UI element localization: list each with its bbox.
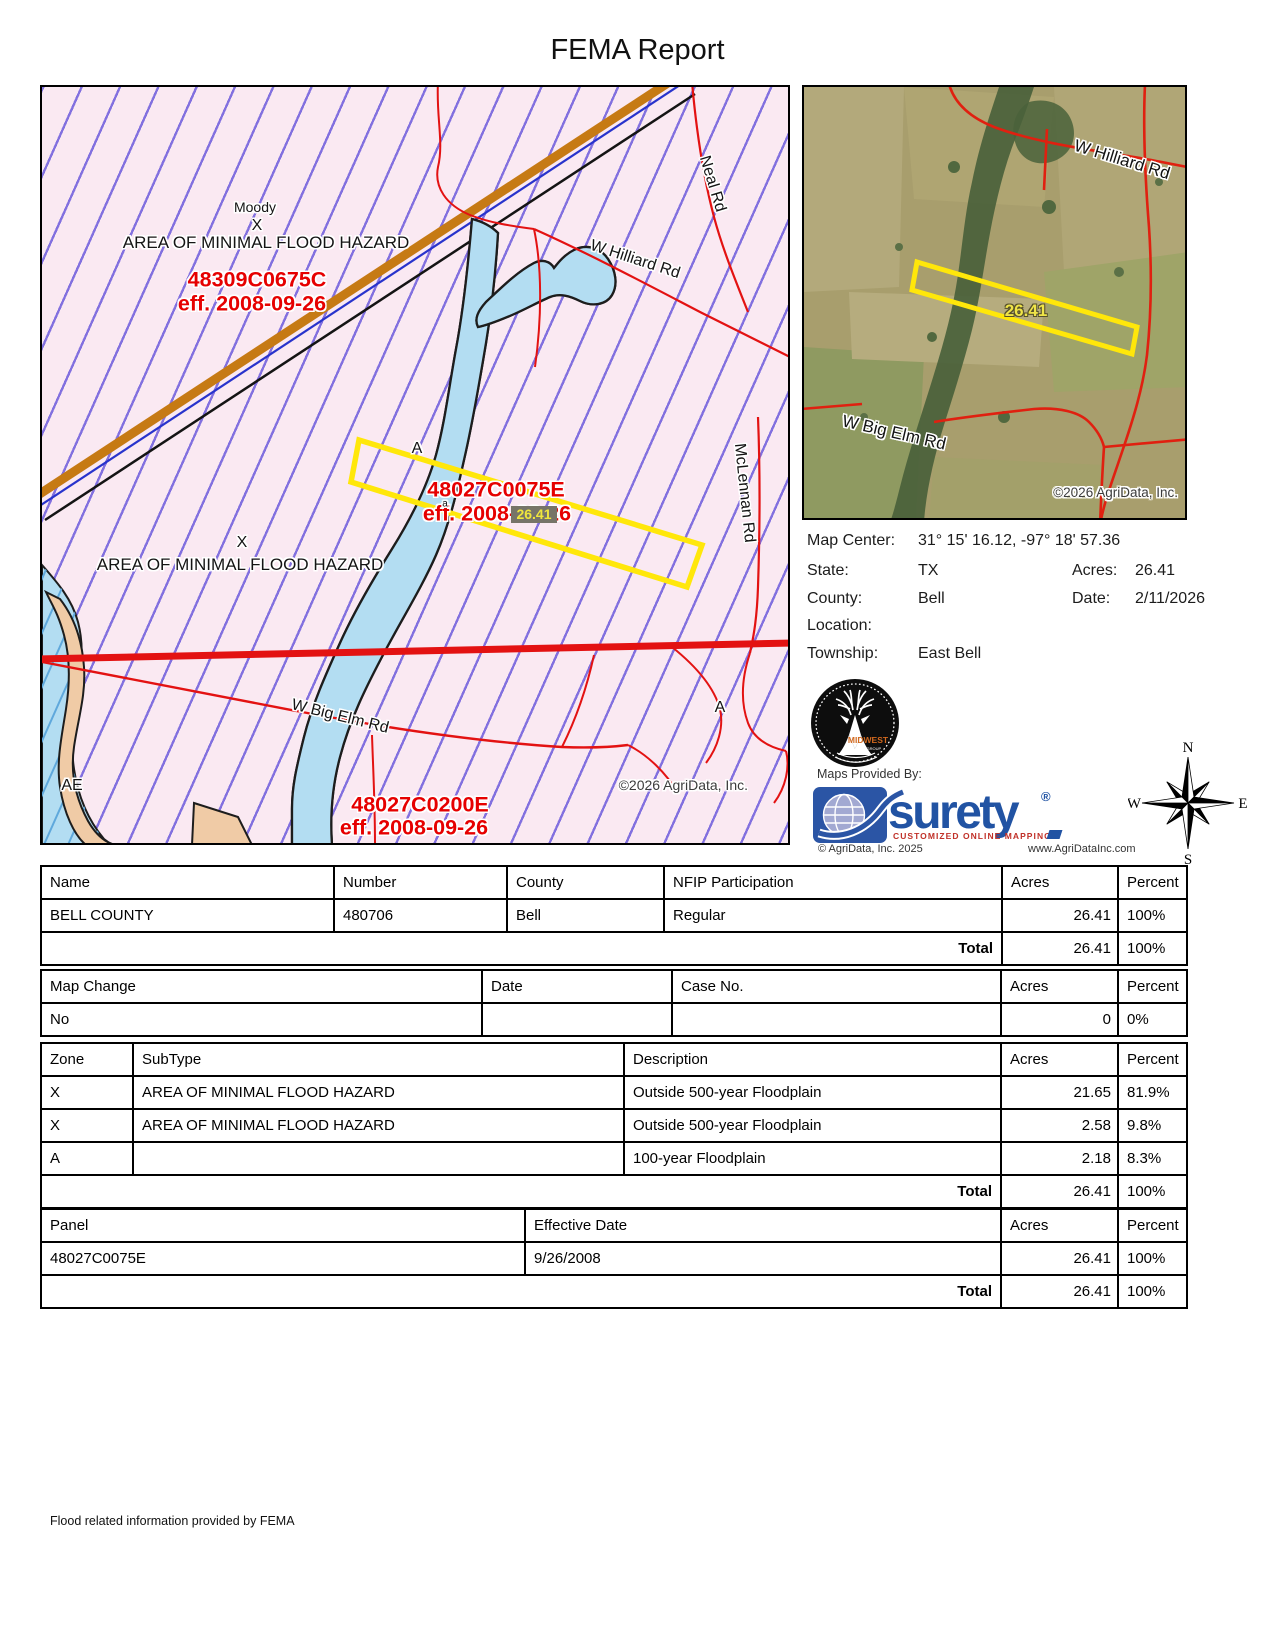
surety-tagline: CUSTOMIZED ONLINE MAPPING bbox=[893, 831, 1052, 841]
surety-tagline-flag bbox=[1047, 830, 1063, 839]
cell-percent: 81.9% bbox=[1118, 1076, 1187, 1109]
cell-acres: 26.41 bbox=[1001, 1242, 1118, 1275]
maps-provided-by-label: Maps Provided By: bbox=[817, 767, 922, 781]
header-cell: Map Change bbox=[41, 970, 482, 1003]
footer-disclaimer: Flood related information provided by FE… bbox=[50, 1514, 295, 1528]
cell-percent: 9.8% bbox=[1118, 1109, 1187, 1142]
zone-x-label-2: X bbox=[237, 534, 248, 552]
compass-w: W bbox=[1128, 796, 1142, 812]
compass-s: S bbox=[1184, 852, 1192, 866]
township-label: Township: bbox=[807, 645, 878, 663]
zone-ae-label: AE bbox=[61, 777, 82, 795]
acres-value: 26.41 bbox=[1135, 562, 1175, 580]
acres-label: Acres: bbox=[1072, 562, 1117, 580]
map-center-value: 31° 15' 16.12, -97° 18' 57.36 bbox=[918, 532, 1120, 550]
zone-area-label-1: AREA OF MINIMAL FLOOD HAZARD bbox=[123, 233, 410, 253]
surety-registered-mark: ® bbox=[1041, 789, 1051, 804]
map-center-label: Map Center: bbox=[807, 532, 895, 550]
parcel-acres-tag: 26.41 bbox=[511, 506, 557, 523]
map-change-header-row: Map Change Date Case No. Acres Percent bbox=[41, 970, 1187, 1003]
place-label-moody: Moody bbox=[234, 199, 276, 215]
midwest-logo-subtext: LAND GROUP bbox=[855, 746, 882, 751]
midwest-logo-text: MIDWEST bbox=[848, 735, 889, 745]
total-label: Total bbox=[41, 1175, 1001, 1208]
map-change-table: Map Change Date Case No. Acres Percent N… bbox=[40, 969, 1188, 1037]
panels-header-row: Panel Effective Date Acres Percent bbox=[41, 1209, 1187, 1242]
cell-subtype: AREA OF MINIMAL FLOOD HAZARD bbox=[133, 1076, 624, 1109]
header-cell: SubType bbox=[133, 1043, 624, 1076]
header-cell: Percent bbox=[1118, 970, 1187, 1003]
total-percent: 100% bbox=[1118, 1275, 1187, 1308]
header-cell: Acres bbox=[1001, 1043, 1118, 1076]
date-value: 2/11/2026 bbox=[1135, 590, 1205, 608]
header-cell: Number bbox=[334, 866, 507, 899]
compass-rose-icon: N E S W bbox=[1128, 738, 1250, 866]
cell-name: BELL COUNTY bbox=[41, 899, 334, 932]
total-percent: 100% bbox=[1118, 1175, 1187, 1208]
cell-percent: 8.3% bbox=[1118, 1142, 1187, 1175]
table-row: BELL COUNTY 480706 Bell Regular 26.41 10… bbox=[41, 899, 1187, 932]
firm-panel-1-eff: eff. 2008-09-26 bbox=[178, 292, 326, 317]
table-row: X AREA OF MINIMAL FLOOD HAZARD Outside 5… bbox=[41, 1076, 1187, 1109]
total-row: Total 26.41 100% bbox=[41, 1275, 1187, 1308]
total-percent: 100% bbox=[1118, 932, 1187, 965]
cell-acres: 21.65 bbox=[1001, 1076, 1118, 1109]
header-cell: Effective Date bbox=[525, 1209, 1001, 1242]
header-cell: Acres bbox=[1001, 970, 1118, 1003]
header-cell: Panel bbox=[41, 1209, 525, 1242]
compass-e: E bbox=[1238, 796, 1247, 812]
total-acres: 26.41 bbox=[1001, 1175, 1118, 1208]
cell-acres: 2.58 bbox=[1001, 1109, 1118, 1142]
cell-map-change: No bbox=[41, 1003, 482, 1036]
header-cell: Acres bbox=[1002, 866, 1118, 899]
firm-panel-3-id: 48027C0200E bbox=[351, 793, 488, 818]
table-row: X AREA OF MINIMAL FLOOD HAZARD Outside 5… bbox=[41, 1109, 1187, 1142]
cell-percent: 100% bbox=[1118, 899, 1187, 932]
cell-county: Bell bbox=[507, 899, 664, 932]
compass-n: N bbox=[1183, 740, 1194, 756]
total-label: Total bbox=[41, 932, 1002, 965]
zone-area-label-2: AREA OF MINIMAL FLOOD HAZARD bbox=[97, 555, 384, 575]
cell-participation: Regular bbox=[664, 899, 1002, 932]
cell-acres: 2.18 bbox=[1001, 1142, 1118, 1175]
zone-ae-shapes bbox=[42, 565, 252, 843]
firm-panel-1-id: 48309C0675C bbox=[188, 268, 327, 293]
surety-wordmark: surety bbox=[888, 789, 1017, 837]
cell-date bbox=[482, 1003, 672, 1036]
cell-number: 480706 bbox=[334, 899, 507, 932]
page-title: FEMA Report bbox=[0, 34, 1275, 67]
map-artifact-a: a bbox=[442, 499, 448, 510]
zone-a-label-1: A bbox=[412, 440, 423, 458]
table-row: No 0 0% bbox=[41, 1003, 1187, 1036]
table-row: A 100-year Floodplain 2.18 8.3% bbox=[41, 1142, 1187, 1175]
aerial-acres-label: 26.41 bbox=[1005, 301, 1048, 321]
county-label: County: bbox=[807, 590, 862, 608]
cell-percent: 0% bbox=[1118, 1003, 1187, 1036]
header-cell: County bbox=[507, 866, 664, 899]
cell-description: 100-year Floodplain bbox=[624, 1142, 1001, 1175]
header-cell: Date bbox=[482, 970, 672, 1003]
total-acres: 26.41 bbox=[1001, 1275, 1118, 1308]
cell-case-no bbox=[672, 1003, 1001, 1036]
fema-report-page: FEMA Report bbox=[0, 0, 1275, 1650]
midwest-land-group-logo: MIDWEST LAND GROUP bbox=[809, 677, 901, 769]
total-row: Total 26.41 100% bbox=[41, 1175, 1187, 1208]
nfip-header-row: Name Number County NFIP Participation Ac… bbox=[41, 866, 1187, 899]
cell-zone: X bbox=[41, 1109, 133, 1142]
date-label: Date: bbox=[1072, 590, 1110, 608]
header-cell: Zone bbox=[41, 1043, 133, 1076]
stream bbox=[292, 219, 615, 843]
agridata-copyright: © AgriData, Inc. 2025 bbox=[818, 843, 923, 855]
cell-effective-date: 9/26/2008 bbox=[525, 1242, 1001, 1275]
flood-map-graphics bbox=[42, 87, 788, 843]
cell-subtype: AREA OF MINIMAL FLOOD HAZARD bbox=[133, 1109, 624, 1142]
cell-zone: A bbox=[41, 1142, 133, 1175]
cell-description: Outside 500-year Floodplain bbox=[624, 1076, 1001, 1109]
county-value: Bell bbox=[918, 590, 945, 608]
roads-red bbox=[42, 87, 788, 843]
header-cell: Acres bbox=[1001, 1209, 1118, 1242]
township-value: East Bell bbox=[918, 645, 981, 663]
state-label: State: bbox=[807, 562, 849, 580]
header-cell: Percent bbox=[1118, 1043, 1187, 1076]
cell-acres: 26.41 bbox=[1002, 899, 1118, 932]
cell-panel: 48027C0075E bbox=[41, 1242, 525, 1275]
aerial-map-panel: W Hilliard Rd W Big Elm Rd 26.41 ©2026 A… bbox=[802, 85, 1187, 520]
zones-header-row: Zone SubType Description Acres Percent bbox=[41, 1043, 1187, 1076]
flood-map-panel: Moody X AREA OF MINIMAL FLOOD HAZARD 483… bbox=[40, 85, 790, 845]
zone-a-label-2: A bbox=[715, 699, 726, 717]
zones-table: Zone SubType Description Acres Percent X… bbox=[40, 1042, 1188, 1209]
firm-panel-3-eff: eff. 2008-09-26 bbox=[340, 816, 488, 841]
cell-percent: 100% bbox=[1118, 1242, 1187, 1275]
header-cell: Percent bbox=[1118, 1209, 1187, 1242]
nfip-table: Name Number County NFIP Participation Ac… bbox=[40, 865, 1188, 966]
total-label: Total bbox=[41, 1275, 1001, 1308]
header-cell: Description bbox=[624, 1043, 1001, 1076]
header-cell: Name bbox=[41, 866, 334, 899]
cell-zone: X bbox=[41, 1076, 133, 1109]
cell-subtype bbox=[133, 1142, 624, 1175]
cell-acres: 0 bbox=[1001, 1003, 1118, 1036]
state-value: TX bbox=[918, 562, 938, 580]
header-cell: Percent bbox=[1118, 866, 1187, 899]
agridata-url: www.AgriDataInc.com bbox=[1028, 843, 1136, 855]
header-cell: Case No. bbox=[672, 970, 1001, 1003]
header-cell: NFIP Participation bbox=[664, 866, 1002, 899]
location-label: Location: bbox=[807, 617, 872, 635]
aerial-copyright: ©2026 AgriData, Inc. bbox=[1053, 485, 1178, 500]
total-row: Total 26.41 100% bbox=[41, 932, 1187, 965]
cell-description: Outside 500-year Floodplain bbox=[624, 1109, 1001, 1142]
panels-table: Panel Effective Date Acres Percent 48027… bbox=[40, 1208, 1188, 1309]
flood-map-copyright: ©2026 AgriData, Inc. bbox=[619, 777, 748, 793]
total-acres: 26.41 bbox=[1002, 932, 1118, 965]
table-row: 48027C0075E 9/26/2008 26.41 100% bbox=[41, 1242, 1187, 1275]
